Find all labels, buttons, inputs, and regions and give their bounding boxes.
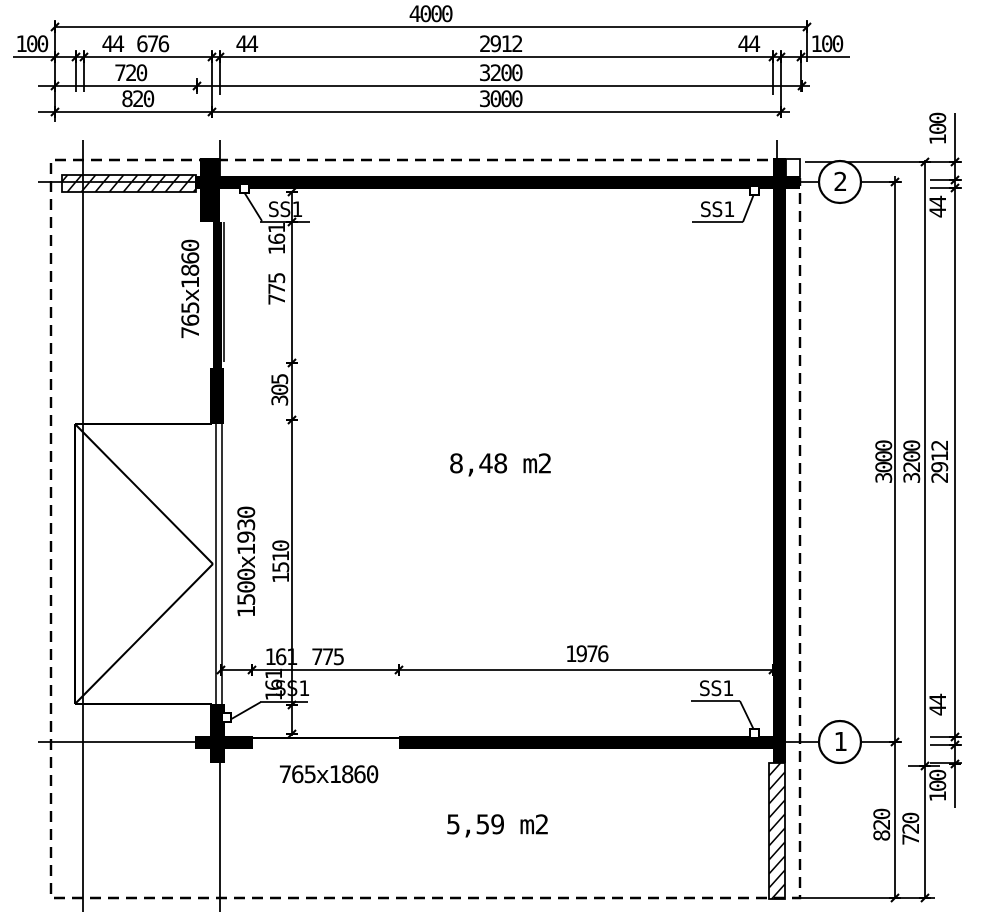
reference-lines xyxy=(38,140,819,912)
ss1-marker-top-left xyxy=(240,184,249,193)
dim-top-2912: 2912 xyxy=(479,33,523,58)
roof-corner-detail xyxy=(786,159,800,177)
dim-top-44-b: 44 xyxy=(235,33,259,58)
dim-top-44-c: 44 xyxy=(737,33,761,58)
floor-plan-drawing: 4000 100 44 676 44 2912 44 100 720 3200 … xyxy=(0,0,981,915)
dim-right-3000: 3000 xyxy=(873,440,898,484)
hatch-beam-top-left xyxy=(50,171,211,196)
dim-right-720: 720 xyxy=(900,813,925,846)
double-door-leaves xyxy=(216,424,222,704)
ss1-label-top-left: SS1 xyxy=(268,198,303,222)
single-door-label-bottom: 765x1860 xyxy=(278,761,378,789)
wall-post-top-left xyxy=(200,158,220,222)
wall-top xyxy=(195,176,800,189)
dim-right-820: 820 xyxy=(871,809,896,842)
dim-right-2912: 2912 xyxy=(929,440,954,484)
dim-top-820: 820 xyxy=(121,88,154,113)
dim-top-44-a: 44 xyxy=(101,33,125,58)
terrace-area-label: 5,59 m2 xyxy=(445,810,548,841)
dim-top-3200: 3200 xyxy=(479,62,523,87)
ss1-marker-bottom-left xyxy=(222,713,231,722)
dim-right-100-top: 100 xyxy=(927,113,952,146)
wall-left-door-section xyxy=(213,222,222,368)
wall-bottom-right-part xyxy=(399,736,786,749)
dimension-lines-top: 4000 100 44 676 44 2912 44 100 720 3200 … xyxy=(13,3,850,122)
roof-overhang-outline xyxy=(51,159,800,898)
dim-right-44-bottom: 44 xyxy=(927,693,952,717)
single-door-label-left: 765x1860 xyxy=(177,240,205,340)
dim-top-100-right: 100 xyxy=(810,33,843,58)
wall-right xyxy=(773,158,786,763)
dim-top-720: 720 xyxy=(114,62,147,87)
double-door-label: 1500x1930 xyxy=(233,506,261,619)
dim-top-3000: 3000 xyxy=(479,88,523,113)
axis-1-number: 1 xyxy=(833,728,848,758)
wall-left-pier xyxy=(210,368,224,424)
dim-int-161-h: 161 xyxy=(264,646,297,671)
ss1-label-bottom-left: SS1 xyxy=(275,677,310,701)
dim-right-100-bottom: 100 xyxy=(927,770,952,803)
dim-overall-width: 4000 xyxy=(409,3,453,28)
dim-int-161-top: 161 xyxy=(266,223,291,256)
dim-int-1976: 1976 xyxy=(565,643,609,668)
axis-2-number: 2 xyxy=(833,168,848,198)
doors xyxy=(75,222,399,738)
ss1-label-top-right: SS1 xyxy=(700,198,735,222)
ss1-marker-top-right xyxy=(750,186,759,195)
text-labels: 8,48 m2 5,59 m2 765x1860 1500x1930 765x1… xyxy=(177,240,552,841)
ss1-marker-bottom-right xyxy=(750,729,759,738)
dim-right-44-top: 44 xyxy=(927,195,952,219)
dim-top-676: 676 xyxy=(136,33,169,58)
hatch-post-bottom-right xyxy=(768,757,786,915)
double-door-swing xyxy=(75,424,213,704)
dim-int-1510: 1510 xyxy=(270,540,295,584)
dim-int-305: 305 xyxy=(269,374,294,407)
main-room-area-label: 8,48 m2 xyxy=(448,449,551,480)
dimension-lines-right: 3000 820 3200 720 100 44 2912 44 100 xyxy=(800,113,962,902)
ss1-label-bottom-right: SS1 xyxy=(699,677,734,701)
axis-marker-2: 2 xyxy=(819,161,861,203)
dim-top-100-left: 100 xyxy=(15,33,48,58)
floor-plan-page: 4000 100 44 676 44 2912 44 100 720 3200 … xyxy=(0,0,981,915)
axis-marker-1: 1 xyxy=(819,721,861,763)
dim-int-775-v: 775 xyxy=(266,273,291,306)
dim-right-3200: 3200 xyxy=(901,440,926,484)
dim-int-775-h: 775 xyxy=(311,646,344,671)
